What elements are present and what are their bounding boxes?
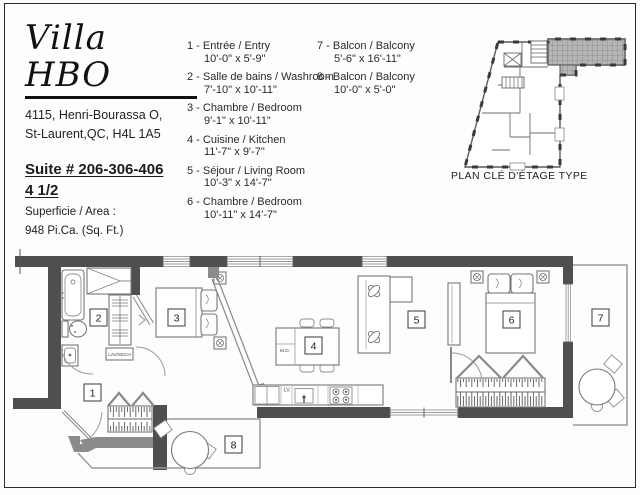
room-label-1: 1 bbox=[84, 384, 101, 401]
top-exterior-wall bbox=[15, 256, 573, 267]
room-label-3: 3 bbox=[168, 309, 185, 326]
svg-text:1: 1 bbox=[90, 388, 96, 400]
balcony7-table bbox=[579, 355, 624, 412]
bathroom-sink bbox=[60, 345, 78, 366]
floorplan-page: Villa HBO 4115, Henri-Bourassa O, St-Lau… bbox=[0, 0, 640, 495]
svg-text:3: 3 bbox=[174, 313, 180, 325]
toilet bbox=[62, 321, 87, 337]
linen-closet bbox=[87, 268, 131, 294]
svg-text:4: 4 bbox=[311, 341, 317, 353]
floorplan-drawing: LAV/SECH bbox=[13, 249, 627, 475]
keyplan-drawing bbox=[465, 39, 625, 170]
balcony-door-window bbox=[564, 284, 573, 342]
left-exterior-wall bbox=[48, 267, 61, 409]
bottom-wall-kitchen bbox=[257, 407, 390, 418]
kitchen-counter: LV. bbox=[253, 385, 383, 405]
laundry-closet: LAV/SECH bbox=[106, 295, 154, 360]
svg-text:7: 7 bbox=[598, 313, 604, 325]
bedroom3-door-arc bbox=[136, 347, 165, 376]
stove bbox=[330, 387, 352, 404]
plan-drawing: LAV/SECH bbox=[0, 0, 640, 495]
right-wall-lower bbox=[563, 342, 573, 412]
svg-text:8: 8 bbox=[231, 440, 237, 452]
bottom-wall-right bbox=[458, 407, 573, 418]
microwave-label: M.O. bbox=[280, 348, 290, 353]
vestibule-wall bbox=[96, 437, 153, 448]
entry-door bbox=[62, 411, 102, 440]
svg-text:5: 5 bbox=[414, 315, 420, 327]
window bbox=[227, 257, 293, 267]
bedroom6-closet bbox=[456, 356, 545, 407]
washroom-bedroom-wall bbox=[131, 267, 140, 295]
laundry-label: LAV/SECH bbox=[108, 352, 130, 357]
ceiling-speaker-icon bbox=[214, 337, 226, 349]
room-label-2: 2 bbox=[90, 309, 107, 326]
bedroom3-bed bbox=[156, 288, 217, 337]
room-label-4: 4 bbox=[305, 337, 322, 354]
keyplan-unit-highlight bbox=[548, 39, 625, 65]
svg-text:6: 6 bbox=[509, 315, 515, 327]
entry-closet bbox=[108, 393, 154, 432]
entry-wall-stub bbox=[13, 398, 48, 409]
room-label-8: 8 bbox=[225, 436, 242, 453]
window bbox=[163, 257, 190, 267]
bathtub bbox=[60, 270, 84, 320]
window bbox=[390, 408, 458, 418]
fridge bbox=[255, 387, 279, 405]
svg-text:2: 2 bbox=[96, 313, 102, 325]
room-label-6: 6 bbox=[503, 311, 520, 328]
sofa bbox=[358, 276, 412, 353]
window bbox=[362, 257, 387, 267]
bedroom6-wardrobe bbox=[448, 283, 460, 345]
ceiling-speaker-icon bbox=[471, 271, 483, 283]
right-wall-upper bbox=[563, 267, 573, 284]
ceiling-speaker-icon bbox=[537, 271, 549, 283]
kitchen-sink bbox=[295, 389, 313, 404]
dishwasher-label: LV. bbox=[284, 388, 291, 394]
room-label-7: 7 bbox=[592, 309, 609, 326]
room-label-5: 5 bbox=[408, 311, 425, 328]
